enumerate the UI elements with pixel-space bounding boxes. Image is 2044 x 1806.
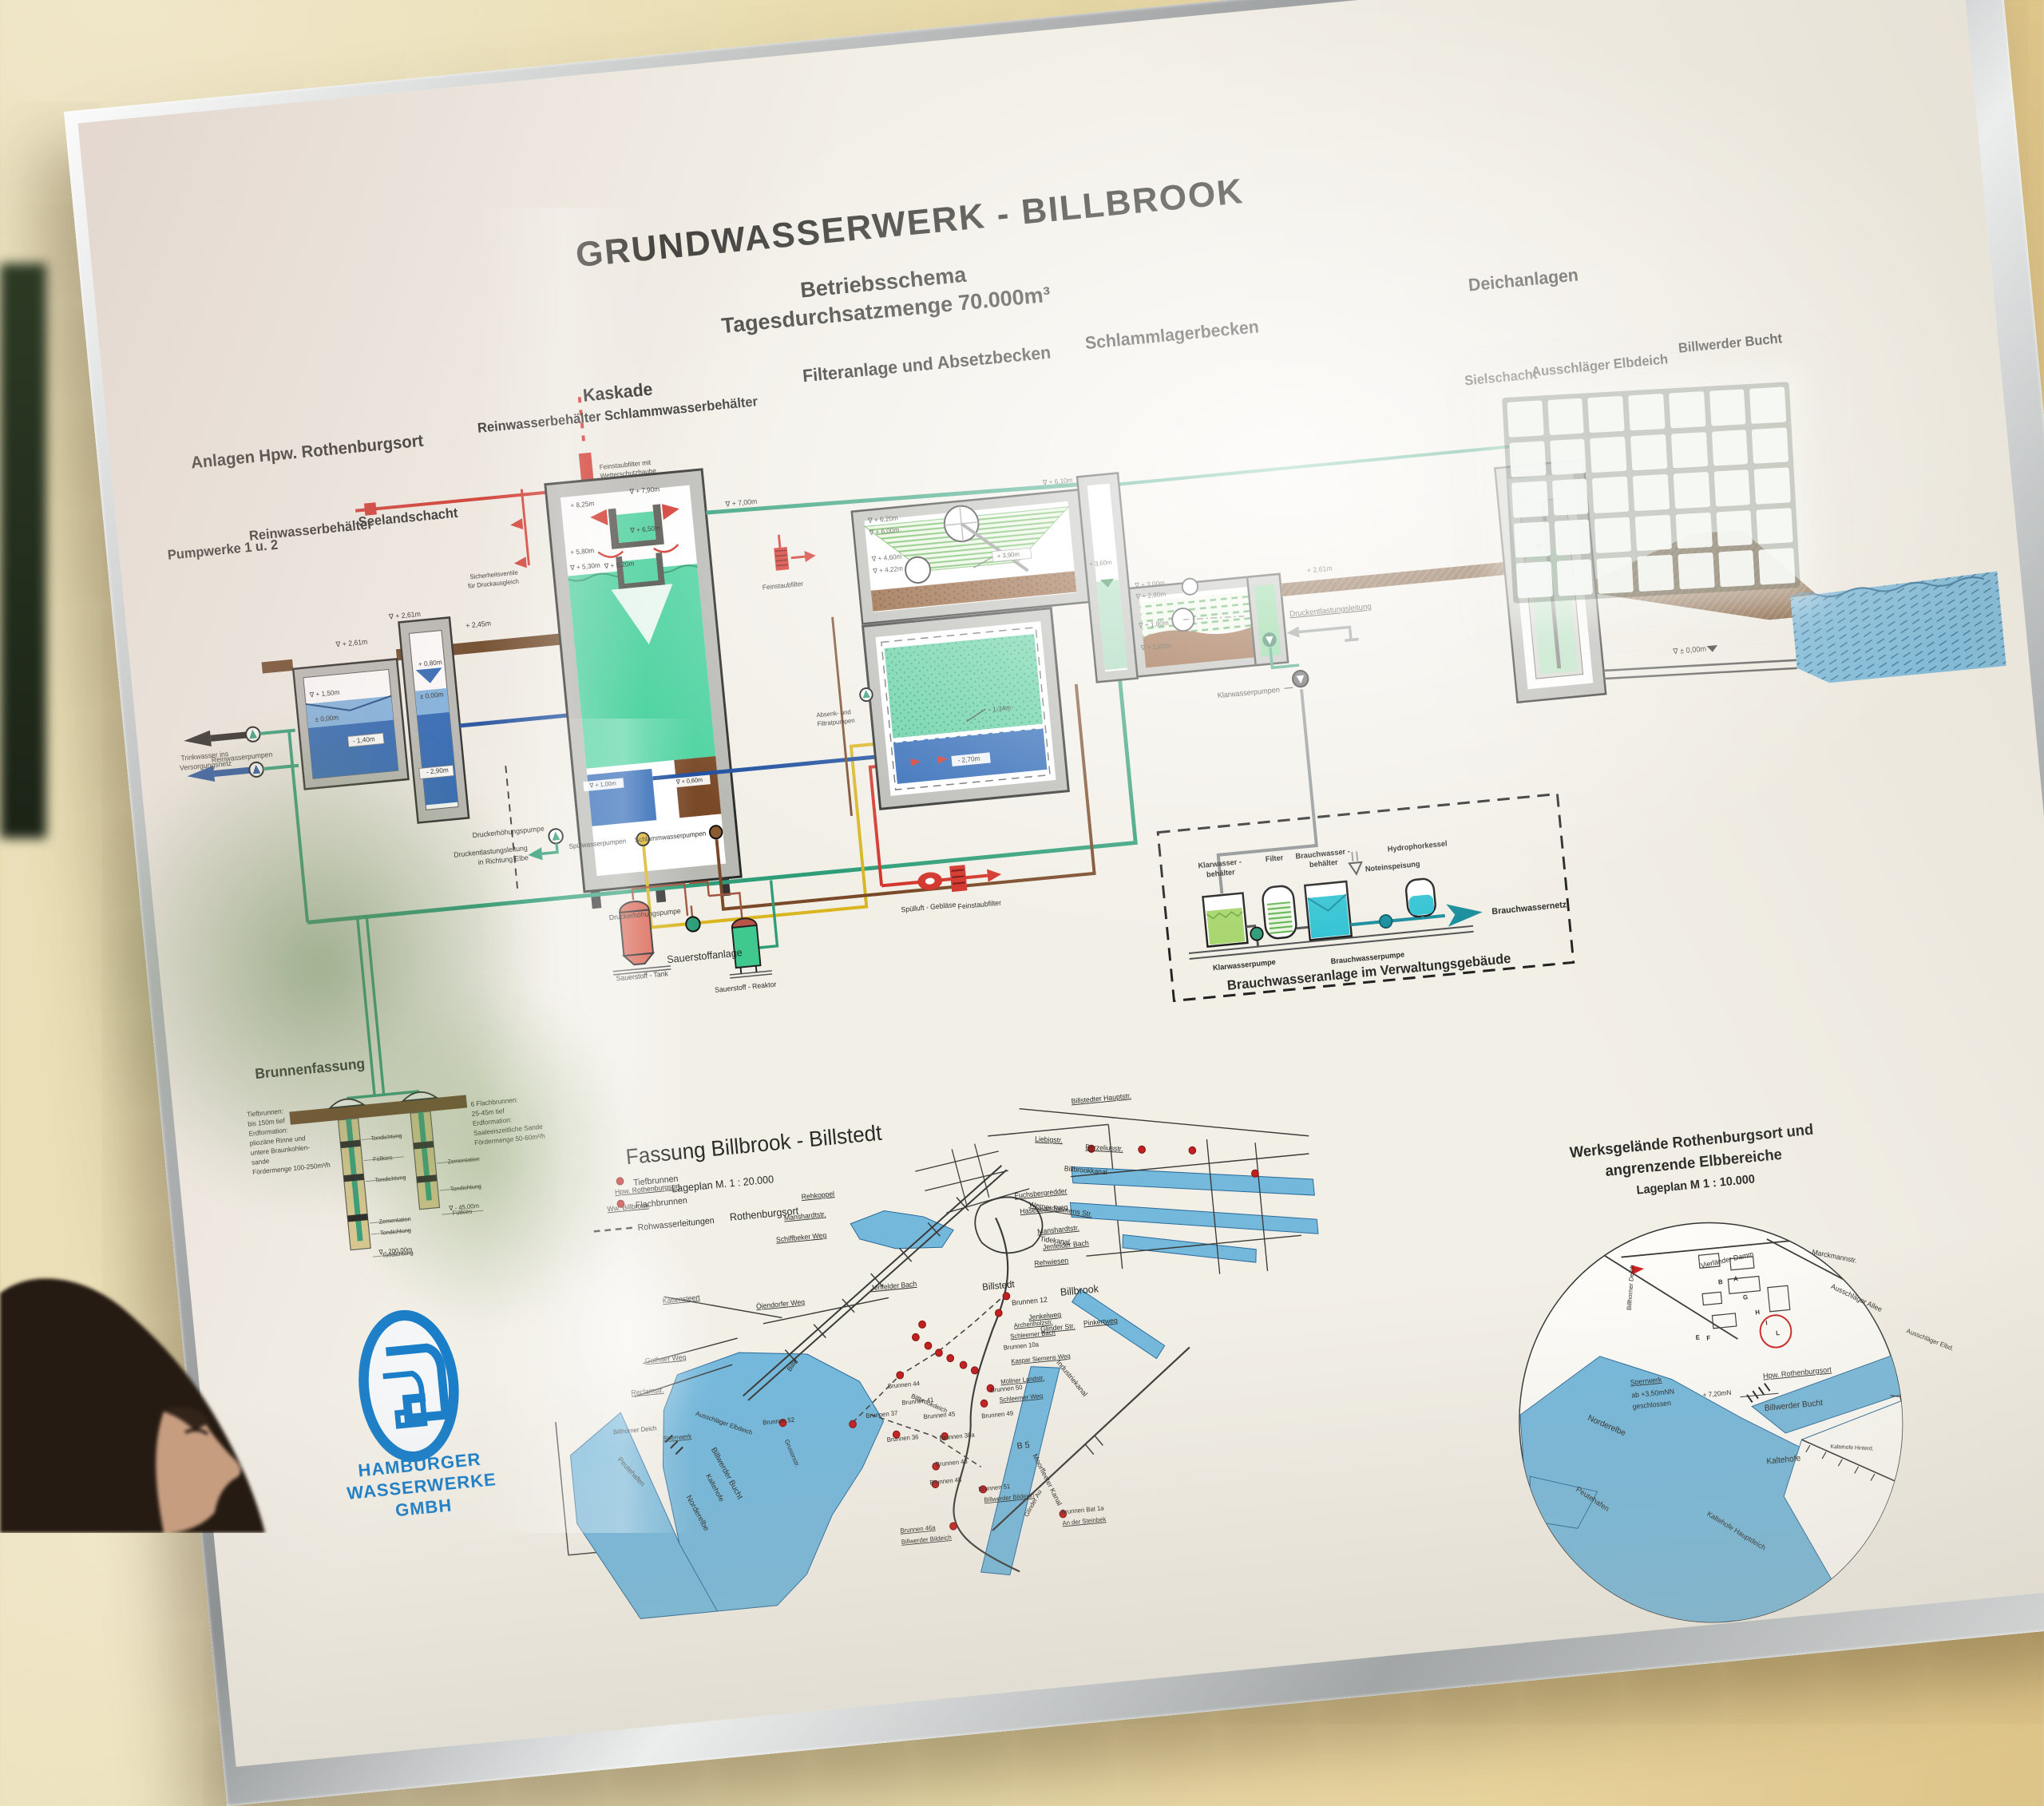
diagram-label: Deichanlagen [1468, 264, 1579, 295]
well-dot [995, 1309, 1003, 1317]
well-dot [849, 1420, 857, 1428]
diagram-label: Fassung Billbrook - Billstedt [624, 1120, 883, 1169]
diagram-label: Feinstaubfilter [957, 898, 1001, 910]
diagram-label: Billwerder Bildeich [901, 1534, 952, 1546]
diagram-label: Billstedter Hauptstr. [1071, 1091, 1131, 1105]
diagram-label: Manshardtstr. [1037, 1223, 1079, 1235]
diagram-label: Sauerstoffanlage [667, 946, 743, 965]
well-dot [980, 1400, 988, 1408]
diagram-label: + 2,45m [465, 619, 491, 629]
well-dot [896, 1371, 904, 1379]
diagram-label: Sauerstoff - Tank [616, 969, 669, 982]
diagram-label: ∇ - 45,00m [448, 1202, 480, 1212]
diagram-label: Rohwasserleitungen [637, 1216, 715, 1233]
diagram-label: Brauchwasser - [1295, 847, 1350, 861]
diagram-label: Brunnen 48 [929, 1476, 962, 1487]
diagram-label: E [1695, 1333, 1700, 1341]
diagram-label: Brunnen Bat 1a [1061, 1504, 1105, 1515]
diagram-label: Industriekanal [1055, 1358, 1089, 1398]
diagram-label: Brunnen 45 [923, 1410, 956, 1420]
well-dot [935, 1349, 943, 1356]
diagram-label: Brunnen 44 [888, 1380, 921, 1390]
diagram-label: ∇ + 7,00m [724, 497, 758, 509]
well-dot [1251, 1170, 1259, 1178]
well-dot [1138, 1146, 1146, 1154]
diagram-label: + 2,61m [1307, 564, 1333, 574]
well-dot [925, 1342, 933, 1350]
well-dot [1003, 1292, 1011, 1300]
diagram-label: Rehkoppel [801, 1190, 834, 1201]
filteranlage-group [842, 473, 1156, 898]
diagram-label: Sauerstoff - Reaktor [715, 980, 777, 994]
diagram-label: Brunnen 36 [886, 1433, 919, 1444]
diagram-label: Klarwasserpumpen [1217, 686, 1280, 700]
diagram-label: Kattensteert [662, 1293, 700, 1305]
well-dot [949, 1523, 957, 1531]
diagram-label: Sielschacht [1464, 366, 1538, 389]
well-dot [912, 1333, 920, 1341]
diagram-label: behälter [1309, 858, 1339, 869]
diagram-label: Billwerder Bucht [1678, 331, 1783, 356]
diagram-label: Rehwiesen [1034, 1256, 1069, 1267]
diagram-label: ∇ + 2,61m [388, 610, 422, 621]
diagram-label: Tondichtung [450, 1182, 481, 1193]
diagram-label: B 5 [1016, 1440, 1030, 1452]
diagram-label: Klarwasserpumpe [1213, 958, 1277, 972]
diagram-label: Tondichtung [370, 1132, 402, 1143]
diagram-label: Filter [1265, 853, 1284, 863]
doorframe-shadow [0, 263, 46, 838]
diagram-label: Brunnen 10a [1003, 1341, 1039, 1351]
diagram-label: Feinstaubfilter [762, 580, 803, 592]
well-dot [918, 1321, 926, 1329]
diagram-label: Noteinspeisung [1365, 860, 1420, 873]
diagram-label: Spülluft - Gebläse [901, 901, 957, 914]
diagram-label: Lageplan M. 1 : 20.000 [671, 1173, 774, 1195]
diagram-label: Brunnen 12 [1012, 1295, 1048, 1306]
diagram-label: Schleemer Bach [1010, 1329, 1056, 1341]
diagram-label: Kaskade [582, 378, 653, 406]
well-dot [946, 1354, 954, 1362]
well-dot [1189, 1147, 1197, 1154]
diagram-label: Druckerhöhungspumpe [472, 824, 545, 839]
deich-group [1430, 422, 2006, 719]
diagram-label: Ausschläger Elbdeich [1531, 351, 1669, 380]
poster-paper: GRUNDWASSERWERK - BILLBROOK Betriebssche… [77, 0, 2044, 1767]
diagram-label: Liebigstr. [1035, 1135, 1063, 1144]
diagram-label: Zementation [447, 1155, 480, 1166]
diagram-label: Lageplan M 1 : 10.000 [1636, 1173, 1756, 1198]
diagram-label: Brunnenfassung [254, 1055, 365, 1083]
well-dot [960, 1361, 968, 1369]
diagram-label: G [1743, 1293, 1749, 1301]
diagram-label: Fuchsbergredder [1014, 1186, 1068, 1200]
diagram-label: Gothaer Weg [644, 1353, 686, 1364]
diagram-label: Billstedt [981, 1278, 1015, 1293]
pumpwerke-group [175, 607, 585, 933]
werksgelaende-map [1501, 1195, 1995, 1640]
well-dot [616, 1178, 624, 1186]
schlammlager-group [1128, 554, 1452, 702]
diagram-label: Zementation [378, 1215, 411, 1226]
diagram-label: Billbrook [1060, 1282, 1099, 1298]
diagram-label: Filteranlage und Absetzbecken [802, 342, 1052, 386]
poster-frame: GRUNDWASSERWERK - BILLBROOK Betriebssche… [64, 0, 2044, 1806]
diagram-label: Brunnen 49 [981, 1409, 1014, 1420]
diagram-label: Ausschläger Elbd. [1906, 1327, 1955, 1353]
diagram-label: An der Steinbek [1062, 1515, 1107, 1527]
hww-logo [358, 1311, 461, 1460]
diagram-label: Tondichtung [380, 1226, 412, 1237]
diagram-label: Schlammlagerbecken [1084, 316, 1260, 353]
diagram-label: ∇ + 2,61m [335, 637, 368, 648]
diagram-label: sande [252, 1157, 271, 1166]
well-dot [971, 1366, 979, 1374]
photo-scene: { "poster": { "title": {"line1":"GRUNDWA… [0, 0, 2044, 1533]
diagram-label: Öjendorfer Weg [756, 1297, 806, 1310]
diagram-label: Brauchwassernetz [1491, 900, 1567, 917]
diagram-label: 6 Flachbrunnen: [470, 1095, 518, 1108]
diagram-label: Reclamstr. [631, 1386, 664, 1397]
diagram-label: Reinwasserbehälter [248, 517, 374, 544]
diagram-label: behälter [1206, 868, 1236, 879]
diagram-label: Anlagen Hpw. Rothenburgsort [190, 431, 424, 472]
diagram-label: ∇ ± 0,00m [1672, 644, 1707, 655]
diagram-label: Hydrophorkessel [1387, 839, 1448, 853]
diagram-label: Ww. Billbrook [607, 1201, 649, 1213]
diagram-label: Füllkies [373, 1154, 394, 1163]
diagram-label: Tondichtung [374, 1174, 406, 1184]
diagram-label: Schiffbeker Weg [776, 1231, 827, 1244]
diagram-label: Druckentlastungsleitung [1289, 602, 1373, 619]
diagram-label: Filtratpumpen [817, 717, 855, 728]
